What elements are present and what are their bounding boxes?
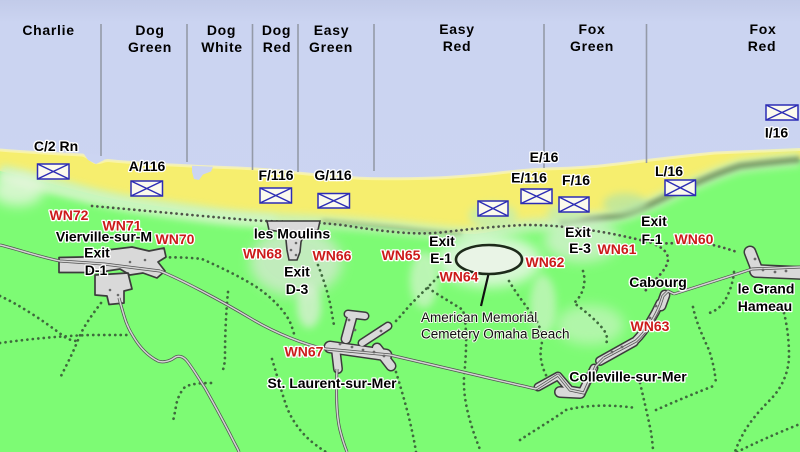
svg-text:Green: Green (309, 39, 353, 55)
svg-text:Colleville-sur-Mer: Colleville-sur-Mer (569, 369, 687, 385)
svg-text:I/16: I/16 (765, 125, 789, 141)
svg-text:F/116: F/116 (258, 167, 293, 183)
svg-text:Easy: Easy (314, 22, 350, 38)
svg-text:Dog: Dog (135, 22, 164, 38)
svg-text:E-1: E-1 (430, 250, 452, 266)
svg-text:Exit: Exit (284, 264, 310, 280)
svg-text:Hameau: Hameau (738, 298, 792, 314)
svg-text:WN61: WN61 (598, 241, 637, 257)
svg-text:F-1: F-1 (642, 231, 663, 247)
svg-text:Exit: Exit (565, 224, 591, 240)
svg-text:Green: Green (570, 38, 614, 54)
svg-text:Exit: Exit (84, 245, 110, 261)
svg-text:WN70: WN70 (156, 231, 195, 247)
svg-text:WN60: WN60 (675, 231, 714, 247)
svg-text:WN64: WN64 (440, 269, 479, 285)
svg-text:E/116: E/116 (511, 170, 547, 186)
svg-text:Easy: Easy (439, 21, 475, 37)
svg-text:American Memorial: American Memorial (421, 310, 537, 325)
svg-text:Fox: Fox (579, 21, 606, 37)
svg-text:Exit: Exit (641, 213, 667, 229)
svg-text:Cabourg: Cabourg (629, 274, 687, 290)
svg-text:WN66: WN66 (313, 248, 352, 264)
svg-text:Red: Red (263, 39, 292, 55)
svg-text:le Grand: le Grand (738, 281, 795, 297)
svg-text:les Moulins: les Moulins (254, 226, 330, 242)
svg-text:WN72: WN72 (50, 207, 89, 223)
svg-text:Red: Red (748, 38, 777, 54)
svg-text:Dog: Dog (262, 22, 291, 38)
svg-text:Dog: Dog (207, 22, 236, 38)
svg-text:Green: Green (128, 39, 172, 55)
svg-text:WN68: WN68 (243, 246, 282, 262)
svg-text:D-3: D-3 (286, 281, 309, 297)
svg-text:Exit: Exit (429, 233, 455, 249)
svg-text:St. Laurent-sur-Mer: St. Laurent-sur-Mer (267, 375, 397, 391)
svg-text:WN62: WN62 (526, 254, 565, 270)
svg-text:Charlie: Charlie (22, 22, 74, 38)
svg-text:Cemetery Omaha Beach: Cemetery Omaha Beach (421, 327, 570, 342)
svg-text:Vierville-sur-M: Vierville-sur-M (56, 229, 152, 245)
svg-text:C/2 Rn: C/2 Rn (34, 138, 78, 154)
svg-text:D-1: D-1 (85, 262, 108, 278)
svg-text:F/16: F/16 (562, 172, 590, 188)
svg-text:E/16: E/16 (530, 149, 559, 165)
svg-text:G/116: G/116 (314, 167, 352, 183)
svg-text:WN65: WN65 (382, 247, 421, 263)
svg-text:Fox: Fox (750, 21, 777, 37)
svg-text:Red: Red (443, 38, 472, 54)
svg-text:WN67: WN67 (285, 344, 324, 360)
svg-text:E-3: E-3 (569, 240, 591, 256)
svg-text:WN63: WN63 (631, 318, 670, 334)
svg-text:A/116: A/116 (129, 158, 166, 174)
svg-text:White: White (201, 39, 243, 55)
svg-text:L/16: L/16 (655, 163, 683, 179)
